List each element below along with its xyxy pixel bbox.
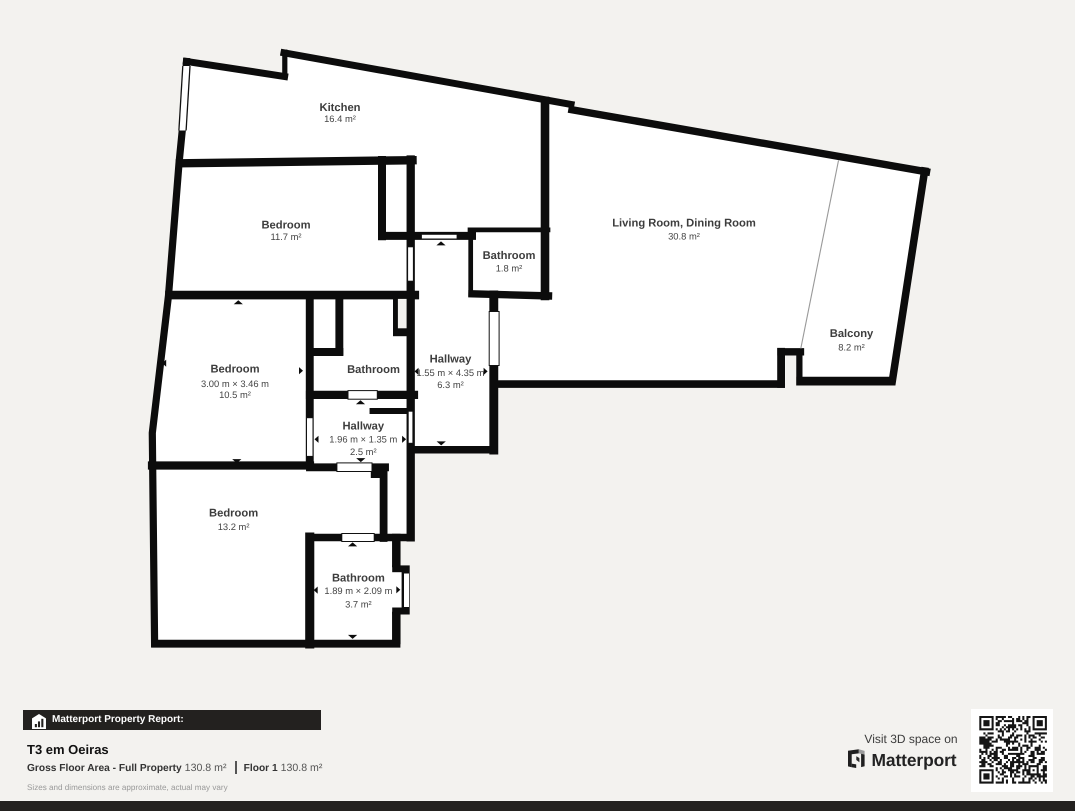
svg-text:11.7 m²: 11.7 m² (270, 231, 301, 242)
svg-text:30.8 m²: 30.8 m² (668, 230, 700, 241)
svg-text:8.2 m²: 8.2 m² (838, 342, 865, 353)
svg-text:Bedroom: Bedroom (261, 220, 310, 232)
svg-text:Hallway: Hallway (342, 421, 384, 433)
svg-text:1.89 m × 2.09 m: 1.89 m × 2.09 m (324, 585, 392, 596)
svg-text:3.7 m²: 3.7 m² (345, 599, 372, 610)
svg-text:1.96 m × 1.35 m: 1.96 m × 1.35 m (329, 433, 397, 444)
svg-text:Living Room, Dining Room: Living Room, Dining Room (612, 218, 756, 230)
svg-text:Bathroom: Bathroom (483, 250, 536, 262)
svg-text:10.5 m²: 10.5 m² (219, 389, 251, 400)
svg-text:13.2 m²: 13.2 m² (218, 521, 250, 532)
svg-text:1.55 m × 4.35 m: 1.55 m × 4.35 m (416, 367, 484, 378)
svg-text:Hallway: Hallway (430, 354, 472, 366)
svg-text:2.5 m²: 2.5 m² (350, 446, 377, 457)
svg-text:6.3 m²: 6.3 m² (437, 379, 464, 390)
svg-text:Bathroom: Bathroom (347, 364, 400, 376)
svg-text:3.00 m × 3.46 m: 3.00 m × 3.46 m (201, 378, 269, 389)
svg-text:16.4 m²: 16.4 m² (324, 113, 356, 124)
svg-text:Bedroom: Bedroom (210, 363, 259, 375)
svg-text:Bedroom: Bedroom (209, 508, 258, 520)
svg-text:Bathroom: Bathroom (332, 573, 385, 585)
svg-text:Balcony: Balcony (830, 328, 874, 340)
svg-text:1.8 m²: 1.8 m² (496, 263, 523, 274)
